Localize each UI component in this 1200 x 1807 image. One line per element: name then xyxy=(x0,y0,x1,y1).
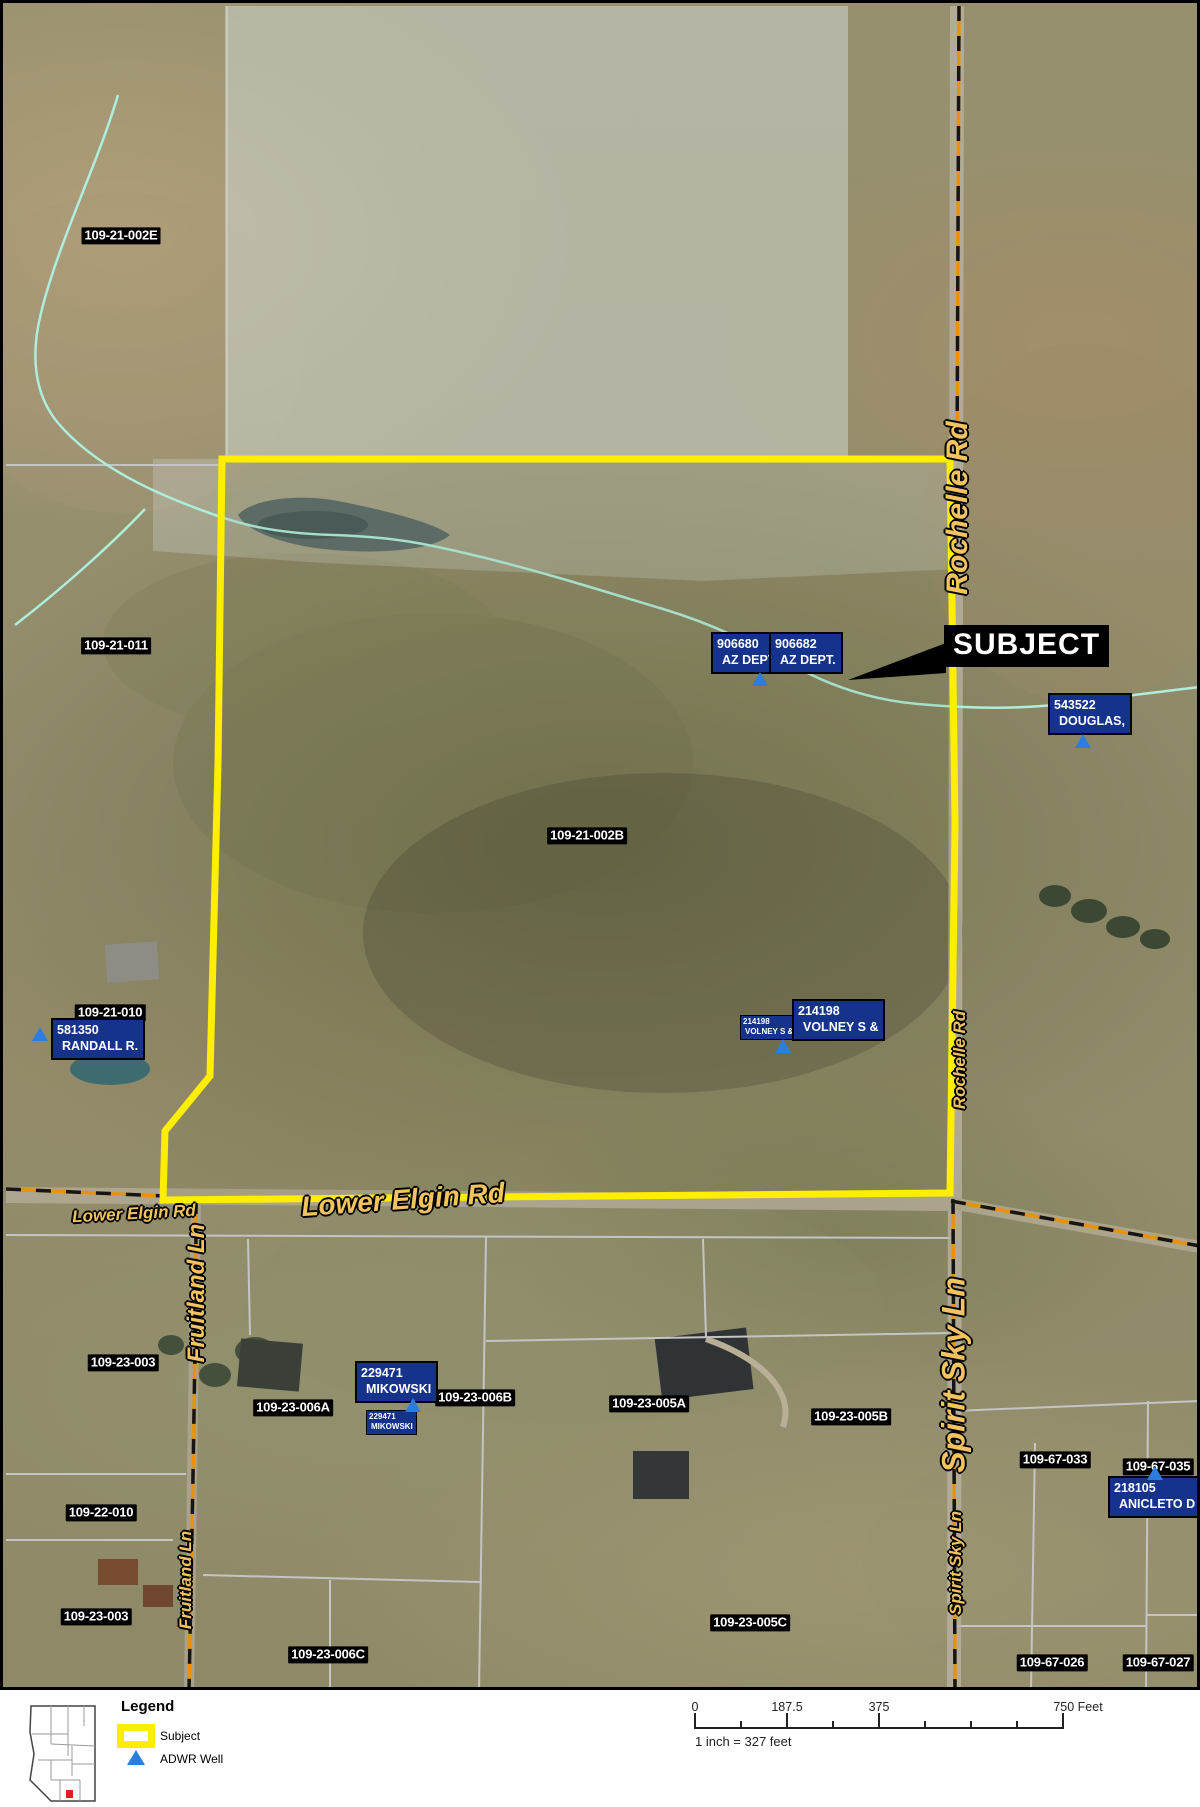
legend-subject-label: Subject xyxy=(160,1729,200,1743)
parcel-label: 109-23-006C xyxy=(288,1646,368,1663)
scalebar-label: 375 xyxy=(869,1700,890,1714)
adwr-well-marker-icon xyxy=(32,1027,48,1041)
well-owner-label: 229471MIKOWSKI xyxy=(355,1361,438,1403)
location-dot xyxy=(66,1790,73,1798)
road-label: Lower Elgin Rd xyxy=(300,1177,506,1223)
well-owner-label: 218105ANICLETO D xyxy=(1108,1476,1200,1518)
parcel-label: 109-67-027 xyxy=(1123,1654,1194,1671)
parcel-label: 109-23-005C xyxy=(710,1614,790,1631)
map-labels-layer: 109-21-002E109-21-011109-21-002B109-21-0… xyxy=(3,3,1197,1687)
legend-subject-swatch xyxy=(117,1724,155,1748)
scalebar-tick xyxy=(924,1721,926,1729)
arizona-locator-inset xyxy=(24,1704,100,1804)
scalebar-tick xyxy=(1016,1721,1018,1729)
parcel-label: 109-23-003 xyxy=(61,1608,132,1625)
road-label: Lower Elgin Rd xyxy=(72,1201,197,1227)
parcel-label: 109-21-011 xyxy=(81,637,151,654)
well-owner-label: 581350RANDALL R. xyxy=(51,1018,145,1060)
road-label: Rochelle Rd xyxy=(941,421,975,594)
road-label: Spirit Sky Ln xyxy=(936,1277,973,1473)
scalebar-tick xyxy=(1062,1713,1064,1729)
road-label: Fruitland Ln xyxy=(183,1224,211,1363)
parcel-label: 109-23-003 xyxy=(88,1354,159,1371)
road-label: Rochelle Rd xyxy=(950,1011,970,1109)
map-viewport: 109-21-002E109-21-011109-21-002B109-21-0… xyxy=(0,0,1200,1690)
road-label: Spirit Sky Ln xyxy=(946,1511,966,1615)
well-owner-label: 543522DOUGLAS, xyxy=(1048,693,1132,735)
parcel-label: 109-67-033 xyxy=(1020,1451,1091,1468)
parcel-label: 109-22-010 xyxy=(66,1504,137,1521)
scalebar-ratio: 1 inch = 327 feet xyxy=(695,1734,792,1749)
parcel-label: 109-23-006B xyxy=(435,1389,515,1406)
parcel-label: 109-23-005B xyxy=(811,1408,891,1425)
well-owner-label: 229471MIKOWSKI xyxy=(366,1410,417,1435)
scalebar-tick xyxy=(832,1721,834,1729)
parcel-label: 109-67-026 xyxy=(1017,1654,1088,1671)
scalebar-tick xyxy=(694,1713,696,1729)
parcel-label: 109-23-006A xyxy=(253,1399,333,1416)
well-owner-label: 906682AZ DEPT. xyxy=(769,632,843,674)
legend-well-label: ADWR Well xyxy=(160,1752,223,1766)
adwr-well-marker-icon xyxy=(405,1398,421,1412)
scalebar-line xyxy=(695,1727,1064,1729)
parcel-label: 109-21-002B xyxy=(547,827,627,844)
well-owner-label: 214198VOLNEY S & xyxy=(792,999,885,1041)
parcel-label: 109-21-002E xyxy=(82,227,161,244)
legend-title: Legend xyxy=(121,1698,174,1715)
parcel-label: 109-23-005A xyxy=(609,1395,689,1412)
adwr-well-marker-icon xyxy=(1147,1466,1163,1480)
adwr-well-marker-icon xyxy=(1075,734,1091,748)
adwr-well-marker-icon xyxy=(775,1039,791,1053)
scalebar-label: 187.5 xyxy=(771,1700,802,1714)
scalebar-label: 750 Feet xyxy=(1053,1700,1102,1714)
scalebar-tick xyxy=(878,1713,880,1729)
scalebar-tick xyxy=(786,1713,788,1729)
legend-well-icon xyxy=(127,1750,145,1765)
map-document-page: 109-21-002E109-21-011109-21-002B109-21-0… xyxy=(0,0,1200,1807)
scalebar-label: 0 xyxy=(692,1700,699,1714)
scalebar-tick xyxy=(740,1721,742,1729)
road-label: Fruitland Ln xyxy=(176,1531,196,1629)
subject-callout: SUBJECT xyxy=(944,625,1109,667)
scalebar-tick xyxy=(970,1721,972,1729)
subject-callout-text: SUBJECT xyxy=(953,628,1100,661)
well-owner-label: 214198VOLNEY S & xyxy=(740,1015,797,1040)
adwr-well-marker-icon xyxy=(752,672,768,686)
